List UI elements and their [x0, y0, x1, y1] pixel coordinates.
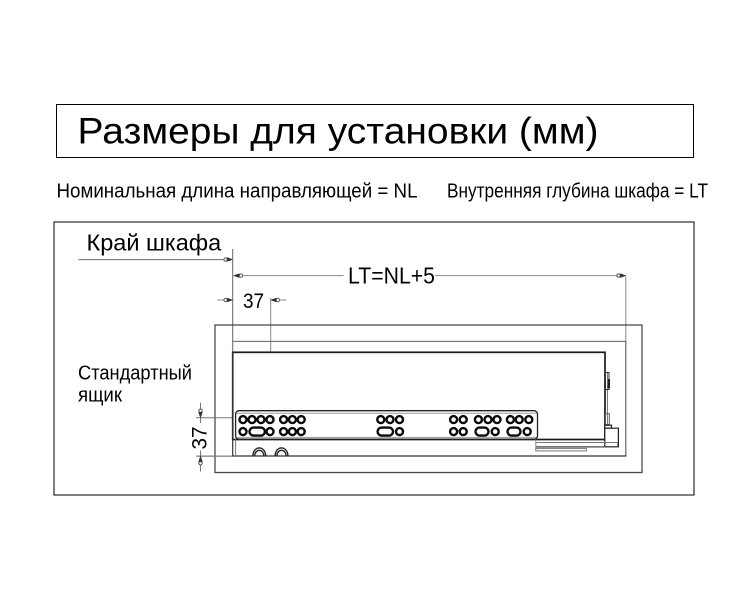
svg-text:Край шкафа: Край шкафа: [87, 230, 222, 256]
svg-text:ящик: ящик: [78, 385, 122, 407]
svg-text:37: 37: [243, 290, 264, 313]
svg-text:Стандартный: Стандартный: [78, 363, 192, 385]
svg-text:Размеры для установки (мм): Размеры для установки (мм): [78, 111, 599, 152]
svg-text:Внутренняя глубина шкафа = LT: Внутренняя глубина шкафа = LT: [447, 181, 708, 203]
svg-text:37: 37: [189, 427, 212, 450]
svg-text:LT=NL+5: LT=NL+5: [348, 263, 435, 289]
svg-text:Номинальная длина направляющей: Номинальная длина направляющей = NL: [57, 181, 418, 203]
